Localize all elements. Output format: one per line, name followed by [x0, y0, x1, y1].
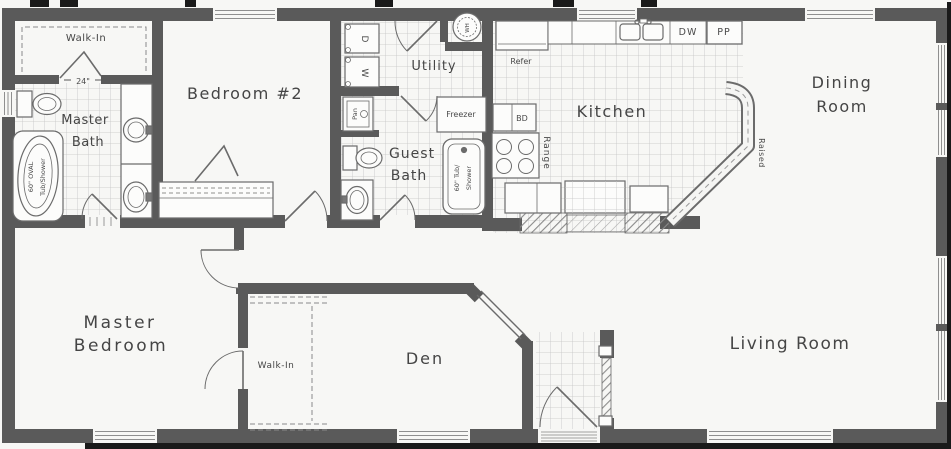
floor-plan: Walk-In 24" Master Bath Bedroom #2 Utili… [0, 0, 951, 449]
wall-den-top [238, 283, 474, 294]
water-heater-label: WH [465, 23, 471, 33]
faucet-icon [146, 126, 152, 134]
dining-room-label-2: Room [816, 97, 868, 116]
window-bedroom2-top [213, 8, 277, 21]
wall-walkin-bottom-b [101, 75, 152, 84]
dishwasher-label: DW [679, 27, 698, 38]
entry-floor [536, 332, 600, 429]
bedroom2-closet [159, 182, 273, 218]
bd-cabinet [493, 104, 536, 131]
master-oval-tub [13, 131, 63, 221]
guest-tub-label-1: 60" Tub/ [453, 164, 461, 192]
master-vanity [121, 84, 152, 218]
window-living-bottom [707, 429, 833, 443]
closet-dim-label: 24" [76, 77, 90, 86]
living-room-label: Living Room [730, 334, 851, 354]
utility-label: Utility [411, 59, 456, 74]
front-door-opening [538, 429, 600, 443]
guest-tub-label-2: Shower [465, 166, 473, 191]
guest-bath-label-2: Bath [391, 168, 428, 184]
faucet-icon [146, 193, 152, 201]
window-kitchen-sink [577, 8, 637, 21]
wall-waterheater-bottom [445, 42, 490, 51]
master-bath-label-2: Bath [72, 135, 104, 150]
raised-counter-label: Raised [757, 138, 766, 168]
wall-den-east [522, 341, 533, 443]
range-label: Range [541, 136, 551, 170]
window-dining-top [805, 8, 875, 21]
master-tub-label-1: 60" OVAL [27, 161, 35, 192]
master-bedroom-label-1: Master [83, 313, 156, 333]
wall-walkin2-west-b [238, 389, 248, 443]
wall-peninsula-west [482, 218, 522, 231]
faucet-icon [342, 196, 347, 203]
refrigerator-label: Refer [510, 57, 532, 66]
kitchen-peninsula [505, 181, 669, 233]
master-toilet [17, 91, 61, 117]
master-bath-label-1: Master [61, 113, 109, 128]
wall-outer-left [2, 8, 15, 443]
washer-label: W [359, 69, 369, 78]
wall-waterheater-left [440, 8, 448, 42]
guest-tub [443, 139, 485, 214]
bedroom2-label: Bedroom #2 [187, 84, 303, 103]
wall-den-angle-stub-a [469, 288, 479, 298]
guest-bath-label-1: Guest [389, 146, 435, 162]
walk-in-top-label: Walk-In [66, 33, 106, 44]
window-masterbed-bottom [93, 429, 157, 443]
window-den-bottom [397, 429, 470, 443]
den-label: Den [406, 349, 444, 368]
freezer-label: Freezer [446, 110, 476, 119]
dryer-label: D [359, 36, 369, 43]
guest-vanity [341, 180, 373, 220]
window-masterbath-left [2, 90, 15, 117]
window-dining-right [936, 43, 947, 157]
pantry-label: PP [717, 27, 730, 38]
wall-bedroom2-utility [330, 21, 341, 228]
walk-in-bottom-label: Walk-In [258, 361, 295, 371]
wall-hall-d [415, 215, 493, 228]
kitchen-label: Kitchen [577, 102, 648, 121]
kitchen-counter-top [548, 19, 742, 44]
pan-cabinet-label: Pan [351, 108, 359, 120]
wall-walkin-bottom-a [15, 75, 59, 84]
range-box [492, 133, 539, 178]
master-tub-label-2: Tub/Shower [39, 158, 47, 197]
bd-cabinet-label: BD [516, 114, 528, 123]
window-living-right [936, 256, 947, 402]
refrigerator-box [496, 21, 548, 50]
wall-walkin2-west-a [238, 288, 248, 348]
guest-toilet [343, 146, 382, 170]
wall-masterbed-east-a [234, 228, 244, 250]
master-bedroom-label-2: Bedroom [74, 336, 168, 356]
faucet-icon [462, 148, 467, 153]
dining-room-label-1: Dining [812, 73, 873, 92]
